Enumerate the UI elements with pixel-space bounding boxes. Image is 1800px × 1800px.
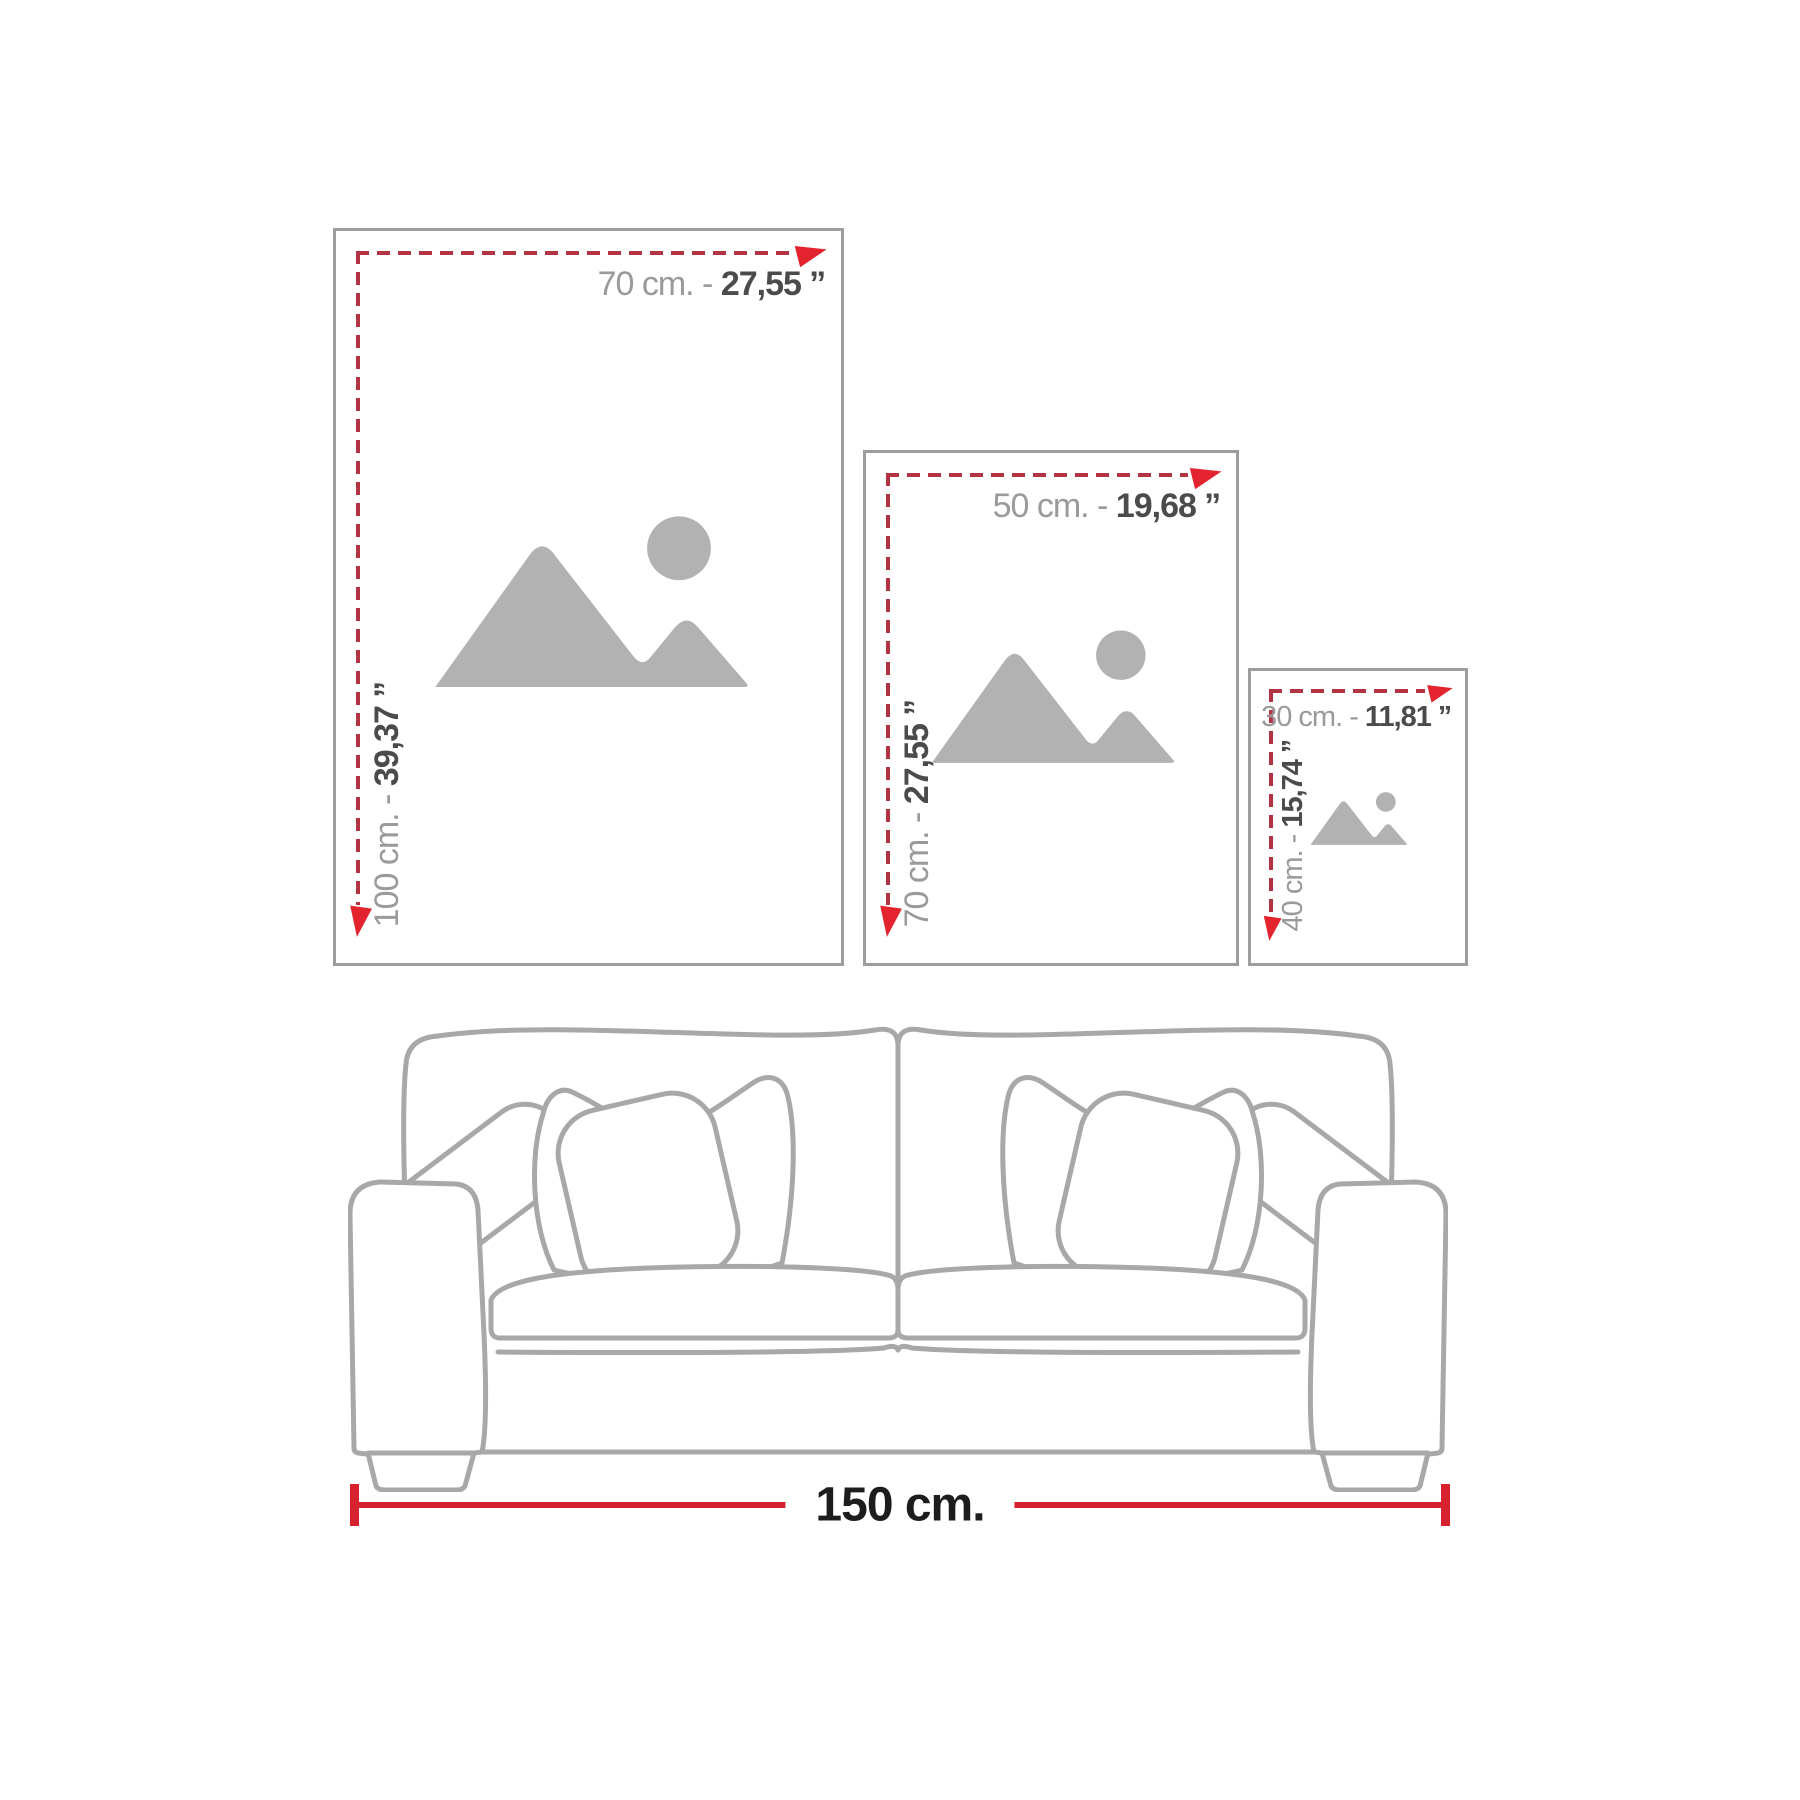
arrow-right-icon [795, 239, 829, 268]
sofa-illustration [348, 1000, 1448, 1492]
sofa-arm-panel [350, 1182, 486, 1457]
height-label-cm: 100 cm. - [368, 786, 406, 927]
height-measure-line [356, 251, 360, 905]
width-label: 30 cm. - 11,81 ’’ [1261, 701, 1451, 734]
height-label-inches: 39,37 ’’ [368, 682, 406, 786]
arrow-right-icon [1427, 679, 1455, 702]
height-label: 100 cm. - 39,37 ’’ [368, 682, 407, 927]
measure-endcap-left [350, 1484, 359, 1526]
image-placeholder-icon [424, 503, 754, 691]
width-label: 70 cm. - 27,55 ’’ [598, 265, 825, 304]
size-guide-diagram: 70 cm. - 27,55 ’’ 100 cm. - 39,37 ’’ 50 … [0, 0, 1800, 1800]
width-label-cm: 30 cm. - [1261, 701, 1365, 733]
width-measure-line [886, 473, 1188, 477]
frame-40x30: 30 cm. - 11,81 ’’ 40 cm. - 15,74 ’’ [1248, 668, 1468, 966]
height-label-cm: 40 cm. - [1277, 827, 1309, 931]
height-label: 40 cm. - 15,74 ’’ [1277, 740, 1310, 931]
width-measure-line [1269, 689, 1425, 693]
image-placeholder-icon [1307, 788, 1409, 846]
width-label-inches: 27,55 ’’ [721, 265, 825, 303]
width-label: 50 cm. - 19,68 ’’ [993, 487, 1220, 526]
image-placeholder-icon [923, 620, 1179, 765]
sofa-width-label: 150 cm. [785, 1478, 1014, 1533]
width-label-inches: 19,68 ’’ [1116, 487, 1220, 525]
measure-endcap-right [1441, 1484, 1450, 1526]
frame-100x70: 70 cm. - 27,55 ’’ 100 cm. - 39,37 ’’ [333, 228, 844, 966]
width-measure-line [356, 251, 793, 255]
sofa-leg [368, 1453, 474, 1490]
width-label-cm: 70 cm. - [598, 265, 721, 303]
frame-70x50: 50 cm. - 19,68 ’’ 70 cm. - 27,55 ’’ [863, 450, 1239, 966]
sofa-width-measure: 150 cm. [354, 1502, 1446, 1508]
sofa-seat-cushion [491, 1266, 898, 1338]
arrow-right-icon [1190, 461, 1224, 490]
width-label-cm: 50 cm. - [993, 487, 1116, 525]
height-label-cm: 70 cm. - [898, 804, 936, 927]
height-measure-line [886, 473, 890, 905]
height-label-inches: 15,74 ’’ [1277, 740, 1309, 828]
width-label-inches: 11,81 ’’ [1365, 701, 1451, 733]
